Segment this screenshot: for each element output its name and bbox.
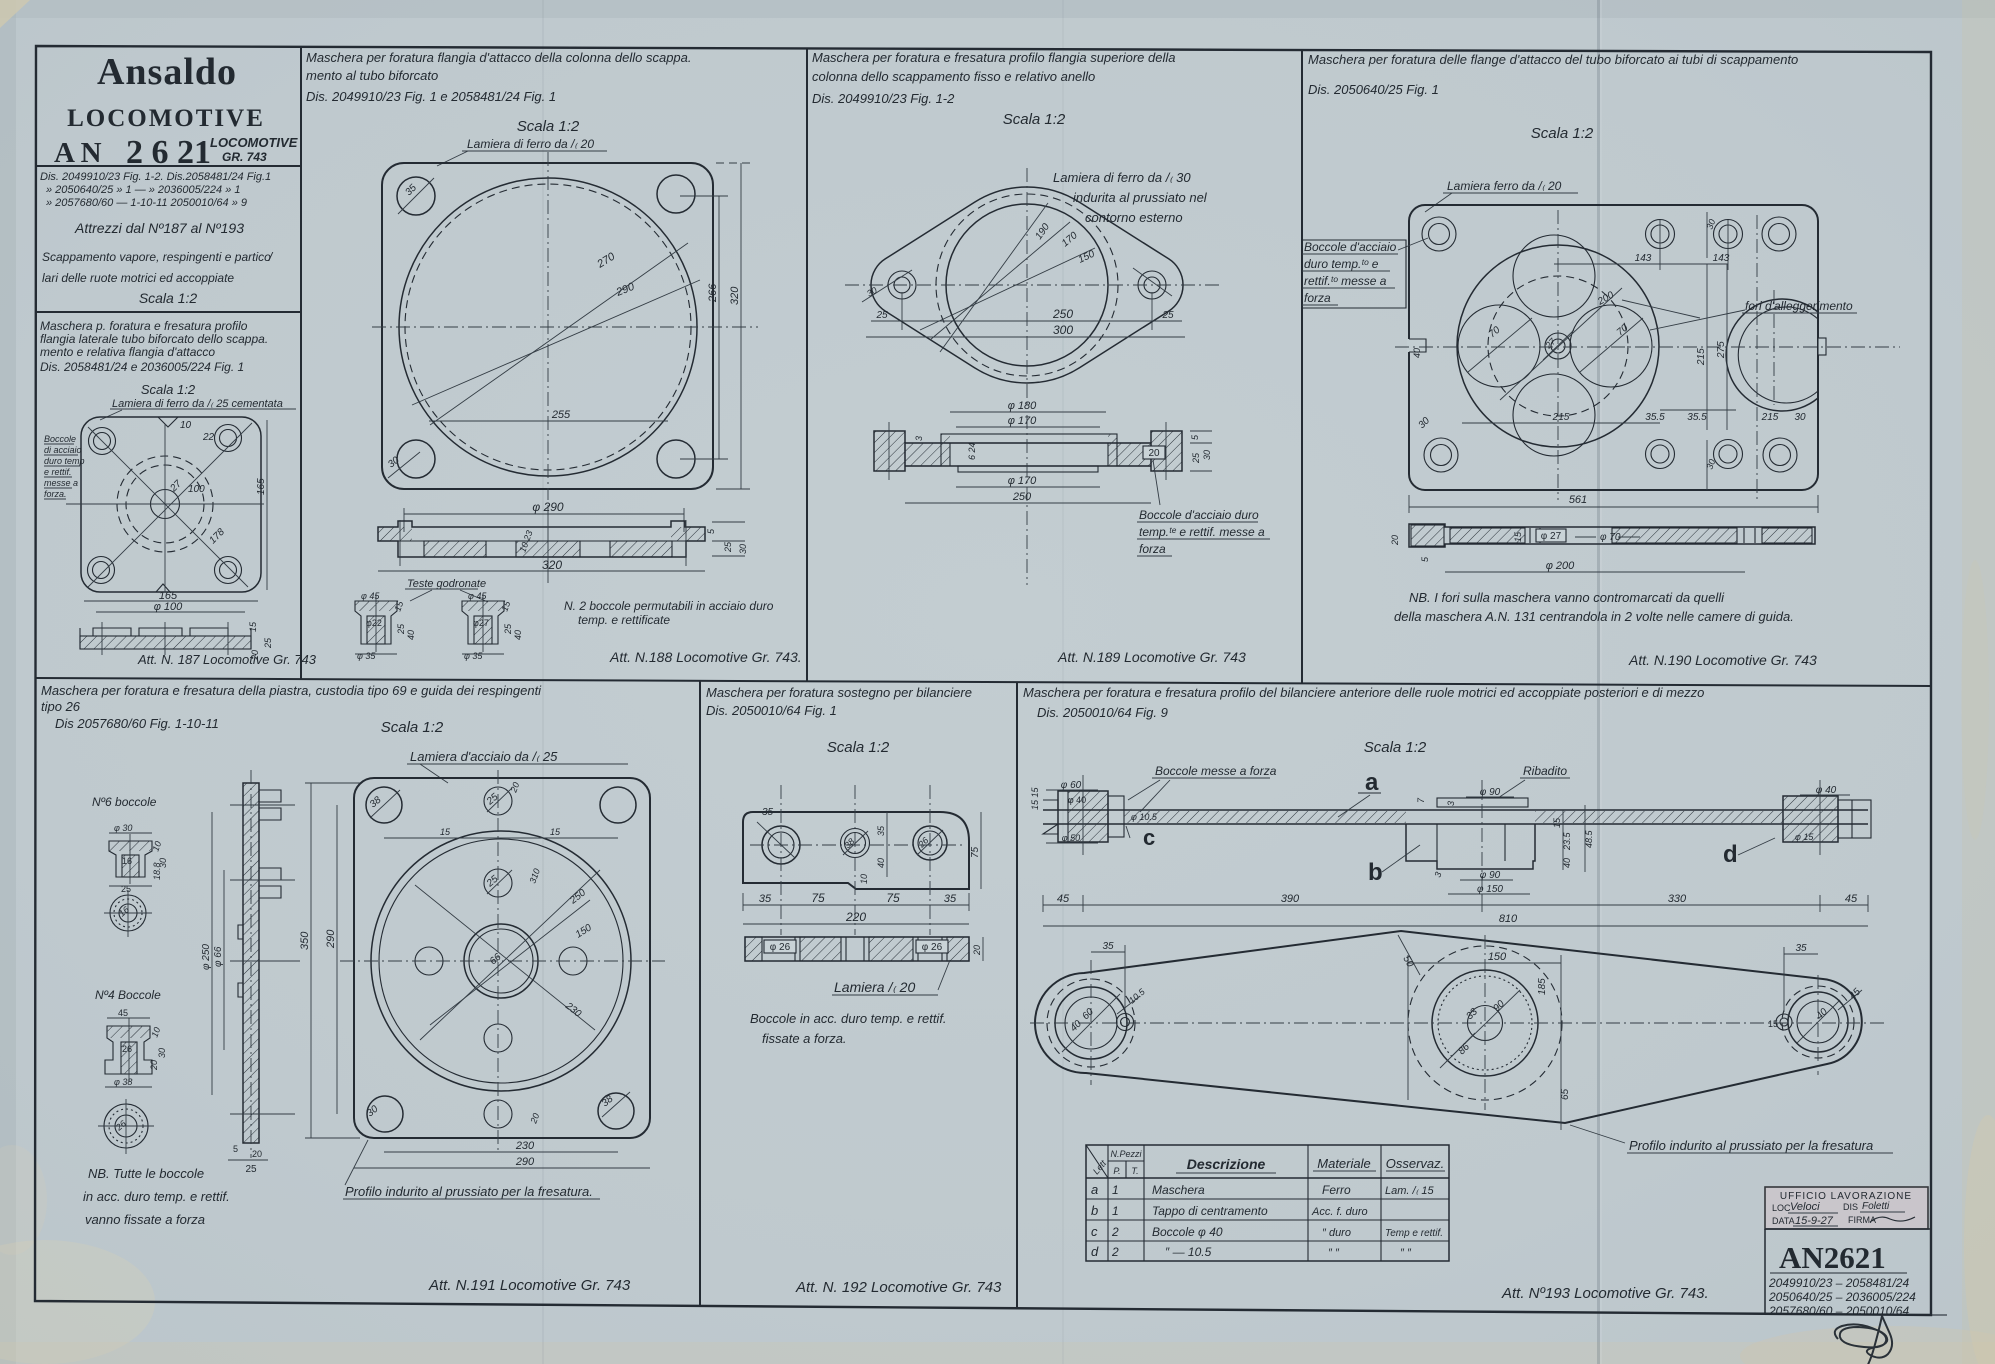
svg-text:Foletti: Foletti [1862,1201,1890,1212]
svg-text:Dis. 2050640/25 Fig. 1: Dis. 2050640/25 Fig. 1 [1308,82,1439,97]
svg-text:lari delle ruote motrici ed ac: lari delle ruote motrici ed accoppiate [42,271,234,285]
svg-text:65: 65 [1560,1088,1571,1100]
svg-text:Teste godronate: Teste godronate [407,578,486,590]
svg-text:215: 215 [1696,348,1707,366]
svg-text:φ 170: φ 170 [1008,475,1037,487]
svg-text:Lamiera d'acciaio da ⁭/₍ 25: Lamiera d'acciaio da ⁭/₍ 25 [410,749,558,764]
svg-text:75: 75 [970,846,981,858]
svg-text:forza: forza [1304,291,1331,305]
svg-text:Att. N.188 Locomotive Gr. 743.: Att. N.188 Locomotive Gr. 743. [609,649,802,665]
svg-text:Nº6 boccole: Nº6 boccole [92,795,157,809]
svg-text:forza: forza [1139,542,1166,556]
svg-text:Scala 1:2: Scala 1:2 [139,290,198,306]
svg-text:35: 35 [1795,943,1807,954]
svg-text:Scala 1:2: Scala 1:2 [141,382,196,397]
svg-text:DATA: DATA [1772,1216,1795,1226]
svg-text:Scala 1:2: Scala 1:2 [517,118,580,135]
svg-text:20: 20 [252,1149,262,1159]
svg-text:Att. Nº193 Locomotive Gr. 74: Att. Nº193 Locomotive Gr. 743. [1501,1285,1709,1302]
svg-text:φ 70: φ 70 [1600,532,1621,543]
svg-text:25: 25 [503,623,513,635]
svg-text:contorno esterno: contorno esterno [1085,210,1183,225]
svg-text:18.8: 18.8 [152,862,162,880]
svg-text:15-9-27: 15-9-27 [1795,1215,1834,1227]
svg-text:T.: T. [1131,1166,1138,1176]
svg-text:Dis. 2049910/23 Fig. 1 e 2058: Dis. 2049910/23 Fig. 1 e 2058481/24 Fig.… [306,89,556,104]
svg-text:25: 25 [723,541,733,553]
svg-text:temp. e rettificate: temp. e rettificate [578,613,670,627]
svg-text:255: 255 [551,409,571,421]
svg-text:15: 15 [1552,817,1562,828]
svg-text:LOCOMOTIVE: LOCOMOTIVE [210,135,298,150]
svg-text:15: 15 [1513,531,1523,542]
svg-text:40: 40 [513,630,523,640]
svg-text:45: 45 [118,1008,128,1018]
svg-text:φ 180: φ 180 [1008,400,1037,412]
svg-text:Att. N. 192 Locomotive Gr. 743: Att. N. 192 Locomotive Gr. 743 [795,1279,1002,1296]
svg-text:10: 10 [180,420,192,431]
svg-text:φ 100: φ 100 [154,601,183,613]
svg-text:» 2050640/25 » 1 — » 2: » 2050640/25 » 1 — » 2036005/224 » 1 [46,184,241,196]
svg-text:6 24: 6 24 [967,442,977,460]
svg-text:indurita al prussiato nel: indurita al prussiato nel [1073,190,1208,205]
svg-text:25: 25 [245,1164,257,1175]
svg-text:1: 1 [1112,1183,1119,1197]
svg-text:330: 330 [1668,893,1687,905]
svg-text:Descrizione: Descrizione [1187,1156,1266,1172]
svg-text:c: c [1091,1224,1098,1239]
svg-text:2050640/25 – 2036005/224: 2050640/25 – 2036005/224 [1768,1290,1916,1304]
svg-text:φ 90: φ 90 [1480,870,1501,881]
svg-text:320: 320 [729,286,741,305]
svg-text:Attrezzi dal Nº187 al Nº193: Attrezzi dal Nº187 al Nº193 [74,220,244,236]
svg-text:Att. N.189 Locomotive Gr. 743: Att. N.189 Locomotive Gr. 743 [1057,649,1246,665]
svg-text:LOCOMOTIVE: LOCOMOTIVE [67,105,265,132]
svg-text:P.: P. [1113,1166,1120,1176]
svg-text:φ 27: φ 27 [1541,531,1562,542]
svg-text:Maschera: Maschera [1152,1183,1205,1197]
svg-text:Maschera per foratura delle fl: Maschera per foratura delle flange d'att… [1308,52,1798,67]
svg-text:290: 290 [515,1156,535,1168]
svg-text:15: 15 [1768,1019,1778,1029]
svg-text:φ 30: φ 30 [114,823,132,833]
svg-text:N.Pezzi: N.Pezzi [1110,1149,1142,1159]
svg-text:φ 50: φ 50 [1062,833,1080,843]
svg-text:100: 100 [188,484,205,495]
svg-text:AN2621: AN2621 [1779,1240,1886,1275]
svg-text:20: 20 [1390,535,1400,546]
svg-text:15 15: 15 15 [1030,786,1040,810]
svg-text:22: 22 [202,432,215,443]
svg-text:″ ″: ″ ″ [1400,1247,1412,1259]
svg-text:mento e relativa flangia d'att: mento e relativa flangia d'attacco [40,345,215,359]
svg-text:Profilo indurito al prussiato: Profilo indurito al prussiato per la fre… [345,1184,593,1199]
svg-text:φ 26: φ 26 [770,942,791,953]
svg-text:20: 20 [972,945,982,956]
svg-text:1: 1 [1112,1204,1119,1218]
svg-text:250: 250 [1052,307,1073,321]
svg-text:Scala 1:2: Scala 1:2 [1531,125,1594,142]
svg-text:40: 40 [1412,348,1422,358]
svg-text:300: 300 [1053,323,1073,337]
svg-text:φ 170: φ 170 [1008,415,1037,427]
svg-text:φ 38: φ 38 [114,1077,132,1087]
svg-text:Dis. 2050010/64 Fig. 1: Dis. 2050010/64 Fig. 1 [706,703,837,718]
svg-text:45: 45 [1845,893,1858,905]
svg-text:2 6 21: 2 6 21 [126,134,211,171]
svg-text:561: 561 [1569,494,1587,506]
svg-text:75: 75 [811,891,825,905]
svg-text:40: 40 [1562,858,1572,868]
svg-text:48.5: 48.5 [1584,829,1594,848]
svg-text:LOC: LOC [1772,1203,1791,1213]
svg-text:Veloci: Veloci [1790,1201,1820,1213]
svg-text:35: 35 [944,893,957,905]
svg-text:15: 15 [550,827,561,837]
svg-text:290: 290 [325,929,337,949]
svg-text:Dis. 2050010/64 Fig. 9: Dis. 2050010/64 Fig. 9 [1037,705,1168,720]
svg-text:Maschera per foratura flangia: Maschera per foratura flangia d'attacco … [306,50,692,65]
svg-text:2: 2 [1111,1225,1119,1239]
svg-text:35.5: 35.5 [1687,412,1707,423]
svg-text:Maschera per foratura e fresat: Maschera per foratura e fresatura profil… [812,50,1175,65]
svg-text:Nº4 Boccole: Nº4 Boccole [95,988,161,1002]
svg-text:FIRMA: FIRMA [1848,1215,1876,1225]
svg-text:Lam. ⁭/₍ 15: Lam. ⁭/₍ 15 [1385,1185,1434,1197]
svg-text:35: 35 [1102,941,1114,952]
svg-text:20: 20 [1148,448,1160,459]
svg-text:30: 30 [1202,450,1212,460]
svg-text:250: 250 [1012,491,1032,503]
svg-text:2057680/60 – 2050010/64: 2057680/60 – 2050010/64 [1768,1304,1909,1318]
svg-text:φ 40: φ 40 [1068,795,1086,805]
svg-text:N. 2 boccole permutabili in ac: N. 2 boccole permutabili in acciaio duro [564,599,774,613]
svg-text:Att. N. 187 Locomotive Gr. 743: Att. N. 187 Locomotive Gr. 743 [137,652,317,667]
svg-text:Lamiera di ferro da ⁭/₍ 25 cem: Lamiera di ferro da ⁭/₍ 25 cementata [112,398,283,410]
svg-text:45: 45 [1057,893,1070,905]
svg-text:Ferro: Ferro [1322,1183,1351,1197]
svg-text:150: 150 [1488,951,1507,963]
svg-text:fori d'alleggerimento: fori d'alleggerimento [1745,299,1853,313]
svg-text:Boccole: Boccole [44,434,76,444]
svg-text:Lamiera di ferro da ⁭/₍ 20: Lamiera di ferro da ⁭/₍ 20 [467,137,594,151]
svg-text:φ 250: φ 250 [201,944,212,970]
svg-text:30: 30 [738,544,748,554]
svg-text:mento al tubo biforcato: mento al tubo biforcato [306,68,438,83]
svg-text:NB. I fori sulla maschera vann: NB. I fori sulla maschera vanno controma… [1409,590,1725,605]
svg-text:220: 220 [845,910,866,924]
svg-text:NB. Tutte le boccole: NB. Tutte le boccole [88,1166,204,1181]
svg-text:Maschera per foratura e fresat: Maschera per foratura e fresatura della … [41,683,542,698]
svg-text:φ 200: φ 200 [1546,560,1575,572]
svg-text:Materiale: Materiale [1317,1156,1370,1171]
svg-text:GR. 743: GR. 743 [222,150,267,164]
svg-text:3: 3 [1446,801,1456,806]
svg-text:a: a [1091,1182,1098,1197]
svg-text:Boccole d'acciaio duro: Boccole d'acciaio duro [1139,508,1259,522]
svg-text:20: 20 [149,1060,159,1071]
svg-text:30: 30 [157,1048,167,1058]
svg-text:390: 390 [1281,893,1300,905]
svg-text:Boccole in acc. duro temp. e r: Boccole in acc. duro temp. e rettif. [750,1011,947,1026]
svg-text:25: 25 [1191,452,1201,464]
svg-text:810: 810 [1499,913,1518,925]
svg-text:185: 185 [1537,978,1548,995]
svg-text:messe a: messe a [44,478,78,488]
svg-text:Dis. 2049910/23 Fig. 1-2: Dis. 2049910/23 Fig. 1-2 [812,91,955,106]
svg-text:275: 275 [1716,341,1727,359]
svg-text:320: 320 [542,558,562,572]
svg-text:Temp e rettif.: Temp e rettif. [1385,1228,1443,1239]
svg-text:30: 30 [1794,412,1806,423]
svg-text:in acc. duro temp. e rettif.: in acc. duro temp. e rettif. [83,1189,230,1204]
svg-text:5: 5 [233,1144,238,1154]
svg-text:″ — 10.5: ″ — 10.5 [1165,1245,1212,1259]
svg-text:266: 266 [707,283,719,303]
svg-text:Att. N.190 Locomotive Gr. 743: Att. N.190 Locomotive Gr. 743 [1628,652,1817,668]
svg-text:35: 35 [876,825,886,836]
svg-text:duro temp: duro temp [44,456,85,466]
svg-text:230: 230 [515,1140,535,1152]
svg-text:Scala 1:2: Scala 1:2 [827,739,890,756]
svg-text:″ duro: ″ duro [1322,1227,1351,1239]
svg-text:Boccole d'acciaio: Boccole d'acciaio [1304,240,1397,254]
svg-text:fissate a forza.: fissate a forza. [762,1031,847,1046]
svg-text:φ 35: φ 35 [357,651,376,661]
svg-text:φ 26: φ 26 [922,942,943,953]
svg-text:15: 15 [440,827,451,837]
svg-text:40: 40 [406,630,416,640]
svg-text:Scala 1:2: Scala 1:2 [1003,111,1066,128]
svg-text:b: b [1091,1203,1098,1218]
svg-text:Boccole φ 40: Boccole φ 40 [1152,1225,1223,1239]
svg-text:23.5: 23.5 [1562,831,1572,851]
svg-text:Maschera per foratura e fr: Maschera per foratura e fresatura profil… [1023,685,1704,700]
svg-text:3: 3 [914,436,924,441]
svg-text:c: c [1143,825,1155,850]
svg-text:di acciaio: di acciaio [44,445,82,455]
svg-text:φ 66: φ 66 [213,946,224,967]
svg-text:vanno fissate a forza: vanno fissate a forza [85,1212,205,1227]
svg-text:25: 25 [875,310,888,321]
svg-text:Lamiera ferro da ⁭/₍ 20: Lamiera ferro da ⁭/₍ 20 [1447,179,1562,193]
svg-text:duro temp.ᵗᵒ e: duro temp.ᵗᵒ e [1304,257,1379,271]
svg-text:Osservaz.: Osservaz. [1386,1156,1445,1171]
svg-text:Tappo di centramento: Tappo di centramento [1152,1204,1268,1218]
svg-text:Dis 2057680/60 Fig. 1-10-11: Dis 2057680/60 Fig. 1-10-11 [55,716,219,731]
svg-text:″ ″: ″ ″ [1328,1247,1340,1259]
svg-text:Maschera p. foratura e fresatu: Maschera p. foratura e fresatura profilo [40,319,248,333]
svg-text:Scappamento vapore, respingent: Scappamento vapore, respingenti e partic… [42,250,274,264]
svg-text:» 2057680/60 — 1-10-11 20: » 2057680/60 — 1-10-11 2050010/64 » 9 [46,197,247,209]
svg-text:φ 90: φ 90 [1480,787,1501,798]
svg-text:215: 215 [1761,412,1779,423]
svg-text:Att. N.191 Locomotive Gr. 743: Att. N.191 Locomotive Gr. 743 [428,1277,631,1294]
svg-text:φ 60: φ 60 [1061,780,1082,791]
svg-text:tipo 26: tipo 26 [41,699,81,714]
svg-text:Scala 1:2: Scala 1:2 [1364,739,1427,756]
svg-text:15: 15 [248,621,258,632]
svg-text:e rettif.: e rettif. [44,467,72,477]
svg-text:25: 25 [396,623,406,635]
svg-text:colonna dello scappamento fiss: colonna dello scappamento fisso e relati… [812,69,1095,84]
svg-text:della maschera A.N. 131 centra: della maschera A.N. 131 centrandola in 2… [1394,609,1794,624]
svg-text:Lamiera ⁭/₍ 20: Lamiera ⁭/₍ 20 [834,979,915,995]
svg-text:φ 15: φ 15 [1795,832,1814,842]
svg-text:Ribadito: Ribadito [1523,764,1567,778]
svg-text:forza.: forza. [44,489,67,499]
svg-text:Boccole messe a forza: Boccole messe a forza [1155,764,1277,778]
svg-text:26: 26 [122,1044,132,1054]
svg-text:Maschera per foratura sostegno: Maschera per foratura sostegno per bilan… [706,685,972,700]
svg-text:40: 40 [876,858,886,868]
svg-text:φ 40: φ 40 [1816,785,1837,796]
svg-text:25: 25 [121,884,131,894]
svg-text:flangia laterale tubo biforcat: flangia laterale tubo biforcato dello sc… [40,332,268,346]
svg-text:350: 350 [299,931,311,950]
svg-text:φ 45: φ 45 [468,591,487,601]
svg-text:a: a [1365,769,1379,796]
svg-text:Dis. 2049910/23 Fig. 1-2. Dis.: Dis. 2049910/23 Fig. 1-2. Dis.2058481/24… [40,171,271,183]
svg-text:temp.ᵗᵉ e rettif. messe a: temp.ᵗᵉ e rettif. messe a [1139,525,1265,539]
svg-text:215: 215 [1552,412,1570,423]
svg-text:35.5: 35.5 [1645,412,1665,423]
svg-text:A N: A N [54,137,102,169]
svg-text:143: 143 [1713,253,1730,264]
svg-text:φ 10.5: φ 10.5 [1131,812,1158,822]
svg-text:Scala 1:2: Scala 1:2 [381,719,444,736]
svg-text:2: 2 [1111,1245,1119,1259]
svg-text:2049910/23 – 2058481/24: 2049910/23 – 2058481/24 [1768,1276,1909,1290]
svg-text:Dis. 2058481/24 e 2036005/224: Dis. 2058481/24 e 2036005/224 Fig. 1 [40,360,244,374]
svg-text:Profilo indurito al prussiato: Profilo indurito al prussiato per la fre… [1629,1138,1873,1153]
svg-text:143: 143 [1635,253,1652,264]
svg-text:Lamiera di ferro da ⁭/₍ 30: Lamiera di ferro da ⁭/₍ 30 [1053,170,1191,185]
svg-text:DIS: DIS [1843,1202,1858,1212]
svg-text:φ 150: φ 150 [1477,884,1503,895]
svg-text:b: b [1368,859,1383,886]
svg-text:φ22: φ22 [366,618,382,628]
svg-text:Ansaldo: Ansaldo [97,51,237,93]
svg-text:25: 25 [263,637,273,649]
svg-text:75: 75 [886,891,900,905]
svg-text:35: 35 [762,807,774,818]
svg-text:10: 10 [859,874,869,884]
svg-text:16: 16 [122,856,132,866]
svg-text:φ27: φ27 [473,618,489,628]
svg-text:Acc. f. duro: Acc. f. duro [1311,1206,1368,1218]
svg-text:165: 165 [256,478,267,495]
svg-text:φ 35: φ 35 [464,651,483,661]
svg-text:d: d [1723,841,1738,868]
svg-text:φ 45: φ 45 [361,591,380,601]
svg-text:rettif.ᵗᵒ messe a: rettif.ᵗᵒ messe a [1304,274,1387,288]
svg-text:25: 25 [1161,310,1174,321]
svg-text:35: 35 [759,893,772,905]
svg-text:d: d [1091,1244,1099,1259]
